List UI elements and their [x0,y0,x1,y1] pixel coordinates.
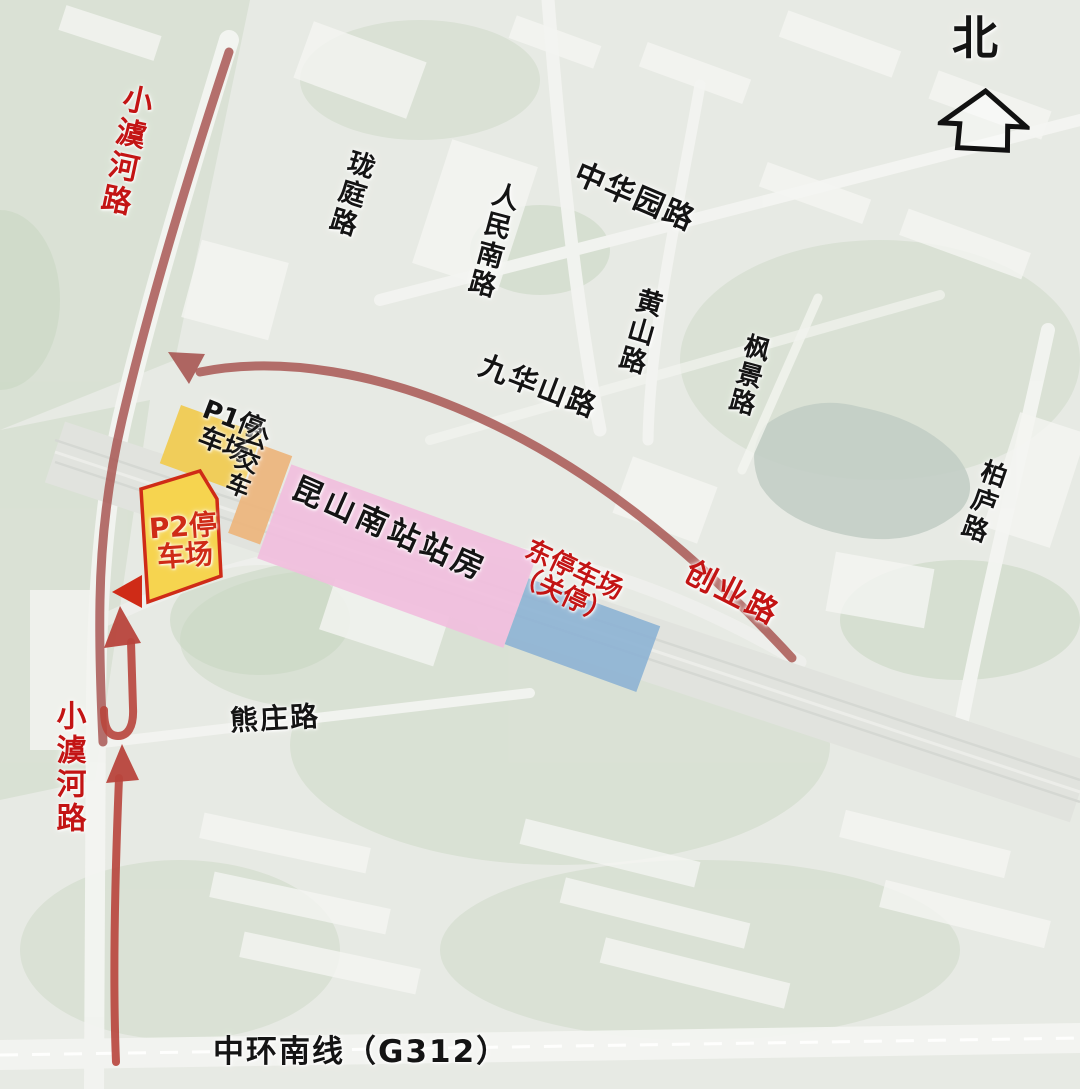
compass-north-label: 北 [952,14,998,62]
map-canvas: 北 小澞河路 珑庭路 人民南路 中华园路 黄山路 九华山路 枫景路 柏庐路 创业… [0,0,1080,1089]
north-arrow-icon [936,86,1031,155]
road-label-zhonghuan-south-g312: 中环南线（G312） [213,1036,509,1069]
arrowhead-p2-entry [112,575,142,608]
p2-lot-label-line2: 车场 [144,539,226,574]
p2-lot-label: P2停 车场 [142,509,226,573]
arrowhead-bottom-up [106,744,139,783]
route-bottom-line [114,778,119,1062]
road-label-xiaoyuhe-south: 小澞河路 [52,700,84,836]
route-arrow-lines [104,642,133,1062]
road-label-xiongzhuang: 熊庄路 [229,702,320,736]
arrowhead-uturn-up [104,606,141,648]
route-uturn-line [104,642,133,736]
